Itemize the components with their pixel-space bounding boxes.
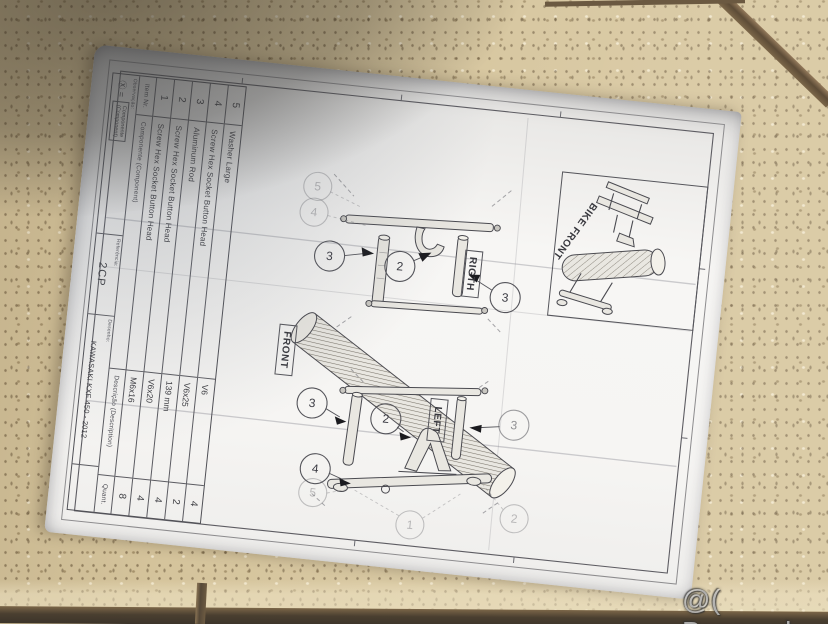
bike-front-label: BIKE FRONT bbox=[551, 200, 599, 261]
balloon: 5 bbox=[302, 171, 333, 202]
bazos-watermark: @( Bazos.sk bbox=[682, 584, 828, 624]
component-marker-symbol: Ⓧ = bbox=[116, 80, 131, 98]
component-marker-box: Componente (Component) bbox=[109, 100, 130, 142]
balloon: 3 bbox=[296, 387, 329, 420]
drawing-name-label: Desenho: bbox=[104, 319, 112, 343]
balloon: 4 bbox=[299, 197, 330, 228]
balloon: 1 bbox=[394, 509, 425, 540]
bike-front-detail: BIKE FRONT bbox=[544, 172, 708, 331]
component-quantity: 4 bbox=[183, 483, 204, 523]
drawing-name-value: KAWASAKI KXF 450 - 2012 bbox=[79, 340, 98, 438]
empty-title-cell bbox=[68, 463, 99, 511]
reference-value: 2CP bbox=[94, 261, 108, 287]
balloon: 3 bbox=[497, 409, 530, 442]
right-view-label: RIGTH bbox=[464, 256, 479, 291]
photo-scene: BIKE FRONT bbox=[0, 0, 828, 624]
grout-line-bottom-left bbox=[195, 583, 207, 624]
drawing-sheet: BIKE FRONT bbox=[44, 44, 742, 599]
balloon: 2 bbox=[499, 503, 530, 534]
front-view-label: FRONT bbox=[278, 331, 293, 369]
bike-front-drawing bbox=[556, 178, 675, 320]
item-number: 5 bbox=[225, 86, 246, 126]
right-view-bottom-bar bbox=[366, 299, 488, 314]
paper-sheet: BIKE FRONT bbox=[44, 44, 742, 599]
